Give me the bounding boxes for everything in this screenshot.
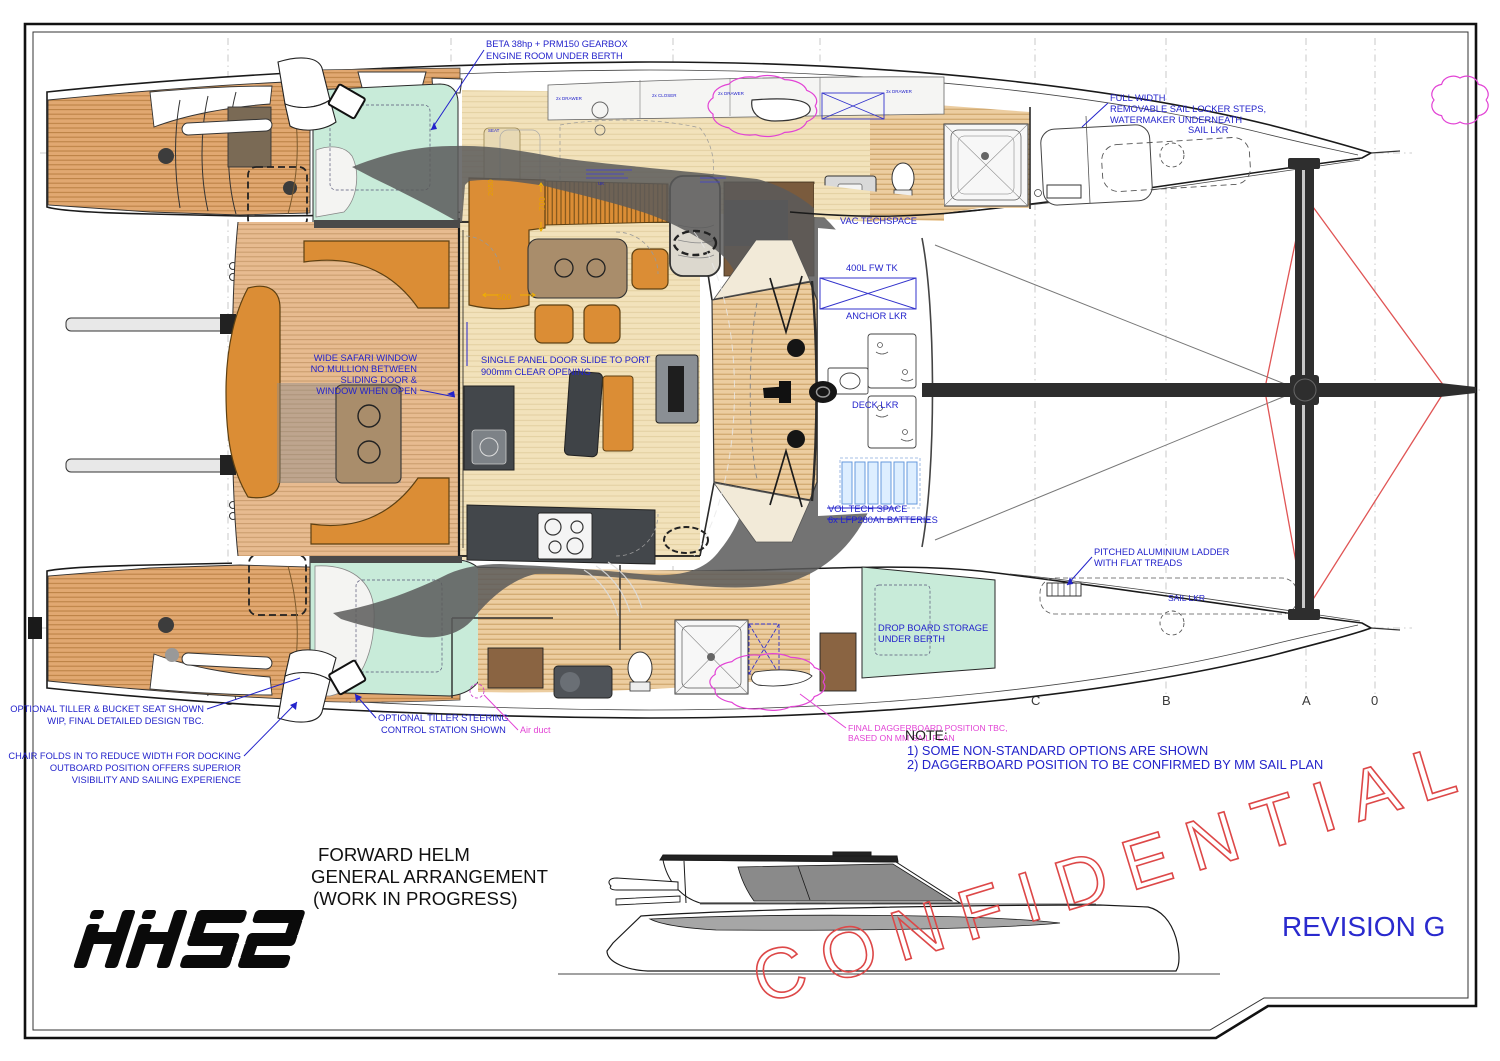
svg-text:FULL WIDTH: FULL WIDTH <box>1110 93 1165 103</box>
svg-text:OUTBOARD POSITION OFFERS SUPER: OUTBOARD POSITION OFFERS SUPERIOR <box>50 763 241 773</box>
svg-text:SINGLE PANEL DOOR SLIDE TO POR: SINGLE PANEL DOOR SLIDE TO PORT <box>481 355 651 365</box>
svg-text:6x LFP280Ah BATTERIES: 6x LFP280Ah BATTERIES <box>828 515 938 525</box>
svg-text:3x DRAWER: 3x DRAWER <box>886 89 913 94</box>
svg-text:WIDE SAFARI WINDOW: WIDE SAFARI WINDOW <box>314 353 418 363</box>
svg-text:CONTROL STATION SHOWN: CONTROL STATION SHOWN <box>381 725 506 735</box>
svg-text:WINDOW WHEN OPEN: WINDOW WHEN OPEN <box>316 386 417 396</box>
svg-text:ENGINE ROOM UNDER BERTH: ENGINE ROOM UNDER BERTH <box>486 51 623 61</box>
svg-text:VISIBILITY AND SAILING EXPERIE: VISIBILITY AND SAILING EXPERIENCE <box>72 775 241 785</box>
svg-text:BETA 38hp + PRM150 GEARBOX: BETA 38hp + PRM150 GEARBOX <box>486 39 628 49</box>
svg-text:2x DRAWER: 2x DRAWER <box>718 91 745 96</box>
svg-text:UNDER BERTH: UNDER BERTH <box>878 634 945 644</box>
svg-text:1) SOME NON-STANDARD OPTIONS A: 1) SOME NON-STANDARD OPTIONS ARE SHOWN <box>907 743 1208 758</box>
svg-text:UK: UK <box>598 181 604 186</box>
svg-text:CHAIR FOLDS IN TO REDUCE WIDTH: CHAIR FOLDS IN TO REDUCE WIDTH FOR DOCKI… <box>8 751 241 761</box>
svg-text:B: B <box>1162 693 1171 708</box>
svg-text:400L FW TK: 400L FW TK <box>846 263 898 273</box>
svg-text:2x CLOSER: 2x CLOSER <box>652 93 677 98</box>
svg-text:REMOVABLE SAIL LOCKER STEPS,: REMOVABLE SAIL LOCKER STEPS, <box>1110 104 1266 114</box>
svg-text:VAC TECHSPACE: VAC TECHSPACE <box>840 216 917 226</box>
svg-text:SEAT: SEAT <box>488 128 500 133</box>
svg-text:PITCHED ALUMINIUM LADDER: PITCHED ALUMINIUM LADDER <box>1094 547 1230 557</box>
svg-text:500: 500 <box>497 292 511 302</box>
svg-text:SLIDING DOOR &: SLIDING DOOR & <box>341 375 418 385</box>
svg-text:Air duct: Air duct <box>520 725 551 735</box>
svg-text:A: A <box>1302 693 1311 708</box>
svg-text:VOL TECH SPACE: VOL TECH SPACE <box>828 504 907 514</box>
svg-text:2x DRAWER: 2x DRAWER <box>556 96 583 101</box>
svg-text:WIP, FINAL DETAILED DESIGN TBC: WIP, FINAL DETAILED DESIGN TBC. <box>47 716 204 726</box>
svg-text:OPTIONAL TILLER STEERING: OPTIONAL TILLER STEERING <box>378 713 509 723</box>
svg-text:DROP BOARD STORAGE: DROP BOARD STORAGE <box>878 623 988 633</box>
svg-text:2050: 2050 <box>486 179 495 196</box>
svg-text:0: 0 <box>1371 693 1378 708</box>
svg-text:FORWARD HELM: FORWARD HELM <box>318 844 470 865</box>
svg-text:SAIL LKR: SAIL LKR <box>1168 593 1205 603</box>
svg-text:GENERAL ARRANGEMENT: GENERAL ARRANGEMENT <box>311 866 548 887</box>
svg-text:WATERMAKER UNDERNEATH: WATERMAKER UNDERNEATH <box>1110 115 1242 125</box>
svg-text:ANCHOR LKR: ANCHOR LKR <box>846 311 907 321</box>
svg-text:NOTE:: NOTE: <box>905 727 948 743</box>
svg-text:WITH FLAT TREADS: WITH FLAT TREADS <box>1094 558 1182 568</box>
svg-text:(WORK IN PROGRESS): (WORK IN PROGRESS) <box>313 888 518 909</box>
svg-text:700: 700 <box>537 197 547 211</box>
svg-text:NO MULLION BETWEEN: NO MULLION BETWEEN <box>311 364 417 374</box>
svg-text:SAIL LKR: SAIL LKR <box>1188 125 1229 135</box>
svg-text:OPTIONAL TILLER & BUCKET SEAT: OPTIONAL TILLER & BUCKET SEAT SHOWN <box>10 704 204 714</box>
svg-text:2) DAGGERBOARD POSITION TO BE: 2) DAGGERBOARD POSITION TO BE CONFIRMED … <box>907 757 1323 772</box>
svg-text:REVISION G: REVISION G <box>1282 911 1445 942</box>
svg-text:DECK LKR: DECK LKR <box>852 400 899 410</box>
svg-text:900mm CLEAR OPENING: 900mm CLEAR OPENING <box>481 367 591 377</box>
